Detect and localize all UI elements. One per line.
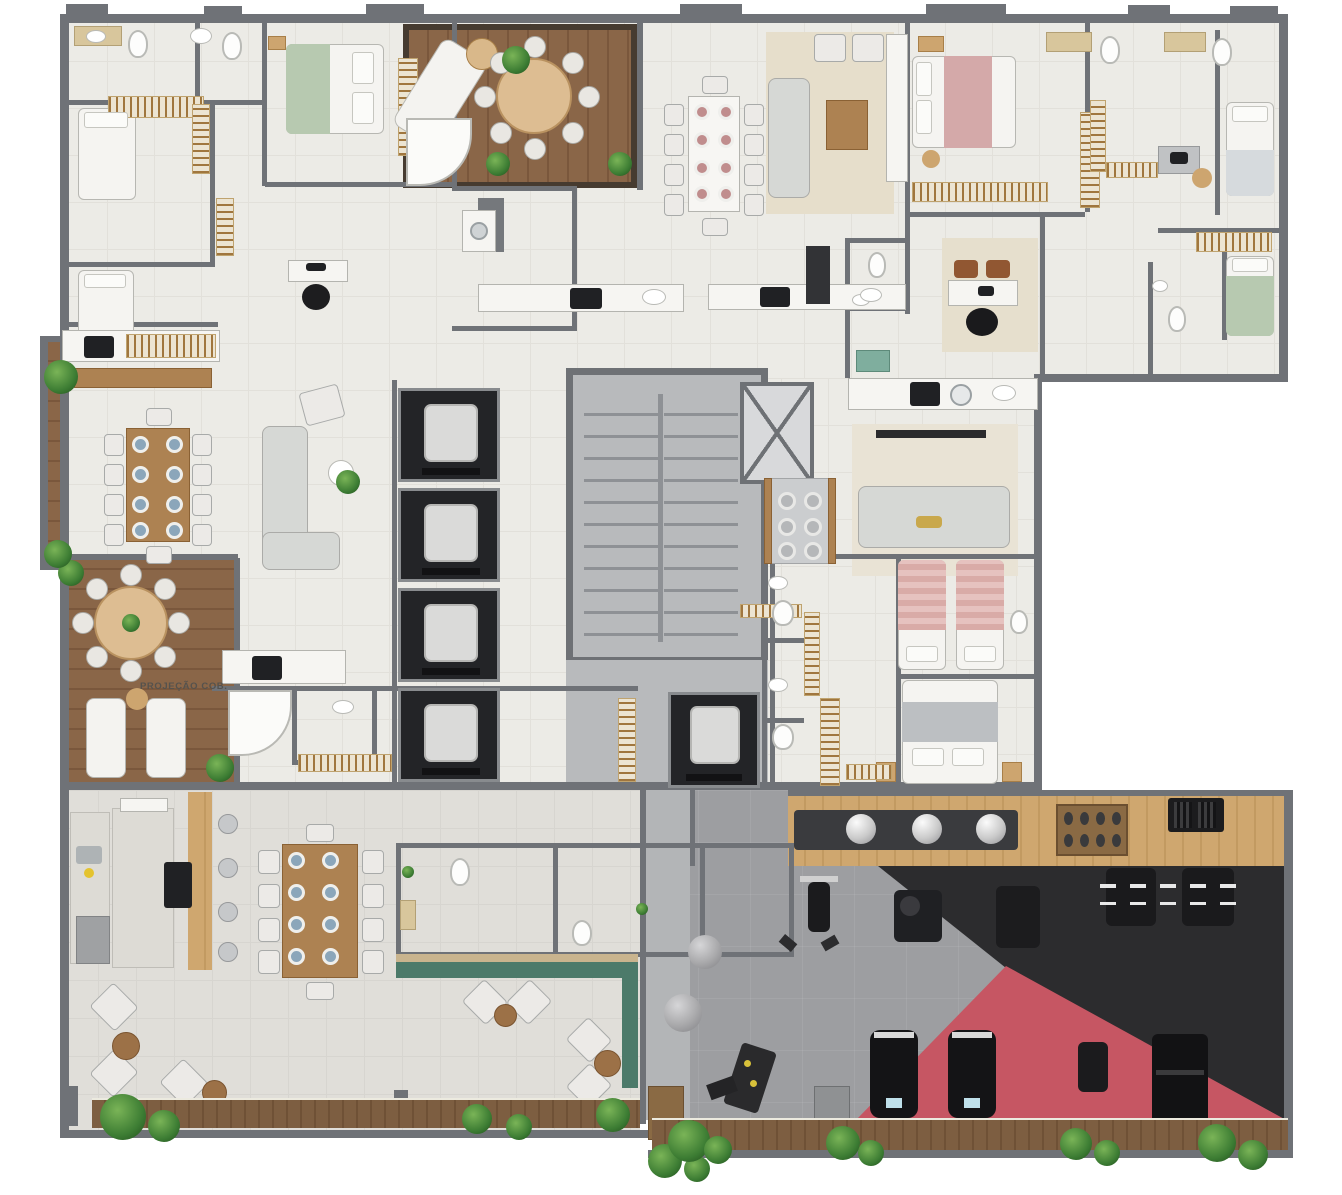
treadmill-2-screen — [964, 1098, 980, 1108]
plate-c3 — [778, 518, 796, 536]
wall-int-24 — [1040, 212, 1045, 378]
twin-bed-1-blanket — [898, 560, 946, 630]
plate-a2 — [166, 436, 183, 453]
basin-tl-2 — [190, 28, 212, 44]
plant-gym-6 — [1094, 1140, 1120, 1166]
chair-a9 — [146, 408, 172, 426]
wall-int-30 — [845, 238, 907, 243]
plant-balcony-2 — [44, 540, 72, 568]
gym-wall-bar-2 — [1100, 902, 1240, 905]
gym-mat-dot-1 — [744, 1060, 751, 1067]
wall-int-37 — [762, 638, 804, 643]
barbell-roll-2 — [1198, 802, 1216, 828]
terrace-post-1 — [60, 1086, 78, 1126]
wall-int-35 — [896, 674, 1038, 679]
bathblock-div-1 — [553, 843, 558, 955]
chair-d7 — [362, 918, 384, 942]
bathblock-top — [396, 843, 794, 848]
bath-green-toilet — [1168, 306, 1186, 332]
plant-terr-4 — [506, 1114, 532, 1140]
small-table-wood-edge-l — [764, 478, 772, 564]
stool-1 — [218, 814, 238, 834]
master-nightstand — [918, 36, 944, 52]
chair-d5 — [362, 850, 384, 874]
plate-c1 — [778, 492, 796, 510]
wall-int-36 — [762, 554, 767, 790]
balcony-tab-5 — [926, 4, 1006, 15]
master-pillow-1 — [916, 62, 932, 96]
wall-int-11 — [452, 326, 577, 331]
service-elevator-car — [690, 706, 740, 764]
plate-b8 — [718, 186, 734, 202]
stove-b — [570, 288, 602, 309]
elevator-door-2 — [422, 568, 480, 575]
wall-int-16 — [292, 688, 297, 764]
dumbbell-2 — [1080, 812, 1089, 825]
elevator-door-1 — [422, 468, 480, 475]
pendant-light-1 — [846, 814, 876, 844]
chair-b1 — [664, 104, 684, 126]
closet-rack-3 — [216, 198, 234, 256]
bath-tr2-toilet — [1212, 38, 1232, 66]
bath-terr-toilet-2 — [572, 920, 592, 946]
laptop-right — [1170, 152, 1188, 164]
bed-lower-pillow-2 — [952, 748, 984, 766]
gym-smith-machine — [1152, 1034, 1208, 1126]
dumbbell-7 — [1096, 834, 1105, 847]
plate-b1 — [694, 104, 710, 120]
plant-balcony-1 — [44, 360, 78, 394]
plate-c2 — [804, 492, 822, 510]
wall-midcol-right — [1034, 374, 1042, 790]
small-dining-table — [764, 478, 836, 564]
dumbbell-3 — [1096, 812, 1105, 825]
elevator-car-2 — [424, 504, 478, 562]
plate-c6 — [804, 542, 822, 560]
plate-d7 — [288, 948, 305, 965]
chair-b7 — [744, 164, 764, 186]
elevator-door-4 — [422, 768, 480, 775]
bed-green-2-pillow — [1232, 258, 1268, 272]
service-elevator-door — [686, 774, 742, 781]
toilet-tl-2 — [222, 32, 242, 60]
plant-deck-1 — [502, 46, 530, 74]
chair-d4 — [258, 950, 280, 974]
wall-balcony-cap-top — [40, 336, 60, 342]
stool-4 — [218, 942, 238, 962]
gym-machine-ne — [894, 890, 942, 942]
plant-terr-3 — [462, 1104, 492, 1134]
wall-int-9 — [452, 186, 576, 191]
plate-d8 — [322, 948, 339, 965]
vent-shaft-x — [740, 382, 814, 484]
closet-rack-tr-1 — [1090, 100, 1106, 172]
terrace-cooktop — [164, 862, 192, 908]
deck-chair-4 — [490, 122, 512, 144]
plate-c4 — [804, 518, 822, 536]
plate-d4 — [322, 884, 339, 901]
chair-b4 — [664, 194, 684, 216]
chair-a10 — [146, 546, 172, 564]
chair-d10 — [306, 982, 334, 1000]
balcony-tab-2 — [204, 6, 242, 15]
wall-int-5 — [210, 100, 215, 267]
wall-gym-bottom — [648, 1150, 1293, 1158]
master-rack-bottom — [912, 182, 1048, 202]
chair-d6 — [362, 884, 384, 908]
bed-single-2-pillow — [84, 274, 126, 288]
chair-b2 — [664, 134, 684, 156]
deck-chair-1 — [578, 86, 600, 108]
deck-chair-3 — [524, 138, 546, 160]
twin-room-toilet — [1010, 610, 1028, 634]
wall-corridor-left — [640, 790, 646, 1124]
plant-gym-5 — [1060, 1128, 1092, 1160]
deckl-chair-6 — [86, 578, 108, 600]
gym-cable-station-1 — [1106, 868, 1156, 926]
deck-left-table-plant — [122, 614, 140, 632]
plate-a8 — [166, 522, 183, 539]
gym-red-bench — [1078, 1042, 1108, 1092]
twin-bed-1-pillow — [906, 646, 938, 662]
plant-terr-5 — [596, 1098, 630, 1132]
basin-tl — [86, 30, 106, 43]
wall-int-3 — [262, 14, 267, 186]
treadmill-2-console — [952, 1032, 992, 1038]
bath-tr2-sink — [1164, 32, 1206, 52]
sofa-left-chaise — [262, 532, 340, 570]
corridor-rack-v — [618, 698, 636, 782]
wall-corridor-right — [690, 790, 695, 866]
wall-int-17 — [372, 688, 377, 764]
projecao-cob-label: PROJEÇÃO COB. — [140, 681, 228, 692]
hedge-vertical — [622, 962, 638, 1088]
dumbbell-8 — [1112, 834, 1121, 847]
bathcol-toilet-1 — [772, 600, 794, 626]
wall-int-28 — [1148, 262, 1153, 376]
elevator-car-3 — [424, 604, 478, 662]
bathcol-toilet-2 — [772, 724, 794, 750]
closet-rack-mid-2 — [846, 764, 892, 780]
bed-single-1-pillow — [84, 112, 128, 128]
gym-cable-station-2 — [1182, 868, 1234, 926]
stair-flight-right — [664, 394, 738, 640]
gym-ball-1 — [688, 935, 722, 969]
plate-d2 — [322, 852, 339, 869]
terrace-round-table-3 — [494, 1004, 517, 1027]
closet-rack-mid-1 — [820, 698, 840, 786]
plate-d6 — [322, 916, 339, 933]
stool-2 — [218, 858, 238, 878]
plate-a6 — [166, 496, 183, 513]
twin-bed-2-blanket — [956, 560, 1004, 630]
bathcol-sink-2 — [768, 678, 788, 692]
lounger-2 — [146, 698, 186, 778]
deckl-chair-7 — [120, 564, 142, 586]
deck-chair-2 — [562, 122, 584, 144]
sideboard-wood — [74, 368, 212, 388]
nightstand-green — [268, 36, 286, 50]
bathcol-sink-1 — [768, 576, 788, 590]
wall-int-38 — [762, 718, 804, 723]
closet-rack-green — [1196, 232, 1272, 252]
hedge-horizontal — [396, 962, 638, 978]
gym-bench — [808, 882, 830, 932]
plate-b6 — [718, 160, 734, 176]
bed-green-pillow-1 — [352, 52, 374, 84]
terrace-flowers — [84, 868, 94, 878]
wall-int-12 — [392, 380, 397, 782]
chair-b5 — [744, 104, 764, 126]
chair-d2 — [258, 884, 280, 908]
balcony-tab-1 — [66, 4, 108, 15]
gym-smith-bar — [1156, 1070, 1204, 1075]
bed-right-pillow — [1232, 106, 1268, 122]
kitchen-midcol-washer — [950, 384, 972, 406]
pendant-light-3 — [976, 814, 1006, 844]
plant-deck-3 — [608, 152, 632, 176]
elevator-car-4 — [424, 704, 478, 762]
gym-planter — [652, 1118, 1288, 1150]
gym-machine-ne-disc — [900, 896, 920, 916]
plant-gym-3 — [826, 1126, 860, 1160]
plate-c5 — [778, 542, 796, 560]
master-pillow-2 — [916, 100, 932, 134]
bath-terr-toilet-1 — [450, 858, 470, 886]
stool-3 — [218, 902, 238, 922]
bath-terr-sink — [400, 900, 416, 930]
kitchen-deck-counter — [222, 650, 346, 684]
twin-bed-2-pillow — [964, 646, 996, 662]
plant-gym-7 — [1198, 1124, 1236, 1162]
dish-rail — [126, 334, 216, 358]
gym-machine-left-black — [996, 886, 1040, 948]
dumbbell-6 — [1080, 834, 1089, 847]
wall-right-upper — [1279, 14, 1288, 382]
elevator-car-1 — [424, 404, 478, 462]
plate-a7 — [132, 522, 149, 539]
pillow-gold — [916, 516, 942, 528]
chair-d3 — [258, 918, 280, 942]
bed-green-2-blanket — [1226, 276, 1274, 336]
wall-gym-right — [1284, 790, 1293, 1158]
office-laptop — [978, 286, 994, 296]
wall-slab-bottom — [60, 782, 646, 790]
nightstand-lower-2 — [1002, 762, 1022, 782]
plate-d3 — [288, 884, 305, 901]
office-guest-chair-2 — [986, 260, 1010, 278]
bed-lower-blanket — [902, 702, 998, 742]
treadmill-1-console — [874, 1032, 914, 1038]
wall-int-20 — [637, 14, 643, 190]
deckl-chair-4 — [86, 646, 108, 668]
plant-gym-4 — [858, 1140, 884, 1166]
closet-rack-tr-2 — [1106, 162, 1158, 178]
terrace-island-sink — [120, 798, 168, 812]
armchair-tr-2 — [852, 34, 884, 62]
corridor-rack — [298, 754, 392, 772]
master-bed-blanket — [944, 56, 992, 148]
closet-rack-2 — [192, 104, 210, 174]
chair-b9 — [702, 76, 728, 94]
terrace-round-table-1 — [112, 1032, 140, 1060]
deckl-chair-3 — [120, 660, 142, 682]
chair-a3 — [104, 494, 124, 516]
wall-int-4 — [60, 262, 212, 267]
plate-a1 — [132, 436, 149, 453]
counter-tr-right — [886, 34, 908, 182]
plate-a5 — [132, 496, 149, 513]
chair-a7 — [192, 494, 212, 516]
deckl-chair-5 — [72, 612, 94, 634]
chair-a8 — [192, 524, 212, 546]
bed-green-blanket — [286, 44, 330, 134]
washer-left-drum — [470, 222, 488, 240]
wine-rack — [806, 246, 830, 304]
plant-living-left — [336, 470, 360, 494]
wall-gym-top — [788, 790, 1288, 796]
chair-d8 — [362, 950, 384, 974]
plate-a4 — [166, 466, 183, 483]
kitchen-midcol-sink — [992, 385, 1016, 401]
wall-int-22 — [905, 212, 1085, 217]
dumbbell-1 — [1064, 812, 1073, 825]
lounger-1 — [86, 698, 126, 778]
chair-a5 — [192, 434, 212, 456]
bath-tr1-sink — [1046, 32, 1092, 52]
treadmill-1-screen — [886, 1098, 902, 1108]
study-chair — [302, 284, 330, 310]
chair-b8 — [744, 194, 764, 216]
deck-chair-5 — [474, 86, 496, 108]
bath-terr-plant-2 — [636, 903, 648, 915]
hedge-top-edge — [396, 954, 638, 962]
office-guest-chair-1 — [954, 260, 978, 278]
balcony-tab-6 — [1128, 5, 1170, 14]
gym-bench-bar — [800, 876, 838, 882]
stove-tr — [760, 287, 790, 307]
chair-b3 — [664, 164, 684, 186]
chair-a2 — [104, 464, 124, 486]
small-table-wood-edge-r — [828, 478, 836, 564]
plant-gym-8 — [1238, 1140, 1268, 1170]
sink-b — [642, 289, 666, 305]
bath-terr-plant-1 — [402, 866, 414, 878]
floor-plan-canvas: PROJEÇÃO COB. — [0, 0, 1342, 1195]
plate-a3 — [132, 466, 149, 483]
plate-d5 — [288, 916, 305, 933]
toilet-tl-1 — [128, 30, 148, 58]
chair-a4 — [104, 524, 124, 546]
armchair-tr-1 — [814, 34, 846, 62]
deckl-chair-1 — [168, 612, 190, 634]
office-chair — [966, 308, 998, 336]
chair-b10 — [702, 218, 728, 236]
plant-deck-left-2 — [206, 754, 234, 782]
deckl-chair-2 — [154, 646, 176, 668]
chair-d1 — [258, 850, 280, 874]
gym-ball-2 — [664, 994, 702, 1032]
dumbbell-4 — [1112, 812, 1121, 825]
bed-right-blanket — [1226, 150, 1274, 196]
bath-deck-sink — [332, 700, 354, 714]
gym-mat-dot-2 — [750, 1080, 757, 1087]
plate-b3 — [694, 132, 710, 148]
plate-b2 — [718, 104, 734, 120]
sofa-top-right — [768, 78, 810, 198]
desk-chair-right — [1192, 168, 1212, 188]
terrace-round-table-4 — [594, 1050, 621, 1077]
office-bath-toilet — [868, 252, 886, 278]
chair-b6 — [744, 134, 764, 156]
coffee-table-tr — [826, 100, 868, 150]
tv-bar-midcol — [876, 430, 986, 438]
balcony-tab-3 — [366, 4, 424, 15]
stair-flight-left — [584, 394, 658, 640]
terrace-cabinet — [76, 916, 110, 964]
stair-mid-rail — [658, 394, 663, 642]
bath-green-sink — [1152, 280, 1168, 292]
sink-tr — [860, 288, 882, 302]
pendant-light-2 — [912, 814, 942, 844]
terrace-sink — [76, 846, 102, 864]
dumbbell-5 — [1064, 834, 1073, 847]
deckl-chair-8 — [154, 578, 176, 600]
dish-rack-green — [856, 350, 890, 372]
chair-a6 — [192, 464, 212, 486]
plate-b7 — [694, 186, 710, 202]
gym-wall-bar-1 — [1100, 884, 1240, 888]
deck-chair-8 — [562, 52, 584, 74]
kitchen-midcol-stove — [910, 382, 940, 406]
plant-gym-2 — [704, 1136, 732, 1164]
bed-green-pillow-2 — [352, 92, 374, 124]
wall-top — [60, 14, 1288, 23]
balcony-tab-7 — [1230, 6, 1278, 15]
plate-b5 — [694, 160, 710, 176]
bed-lower-pillow-1 — [912, 748, 944, 766]
elevator-door-3 — [422, 668, 480, 675]
plant-terr-2 — [148, 1110, 180, 1142]
balcony-tab-4 — [680, 4, 742, 15]
plant-terr-1 — [100, 1094, 146, 1140]
kitchen-deck-stove — [252, 656, 282, 680]
plate-d1 — [288, 852, 305, 869]
plate-b4 — [718, 132, 734, 148]
study-monitor — [306, 263, 326, 271]
stove-top-left — [84, 336, 114, 358]
plant-gym-1 — [668, 1120, 710, 1162]
wall-wing-bottom — [1034, 374, 1288, 382]
bath-tr1-toilet — [1100, 36, 1120, 64]
plant-deck-2 — [486, 152, 510, 176]
barbell-roll-1 — [1174, 802, 1192, 828]
chair-d9 — [306, 824, 334, 842]
chair-a1 — [104, 434, 124, 456]
closet-rack-mid-4 — [804, 612, 820, 696]
master-pouf — [922, 150, 940, 168]
